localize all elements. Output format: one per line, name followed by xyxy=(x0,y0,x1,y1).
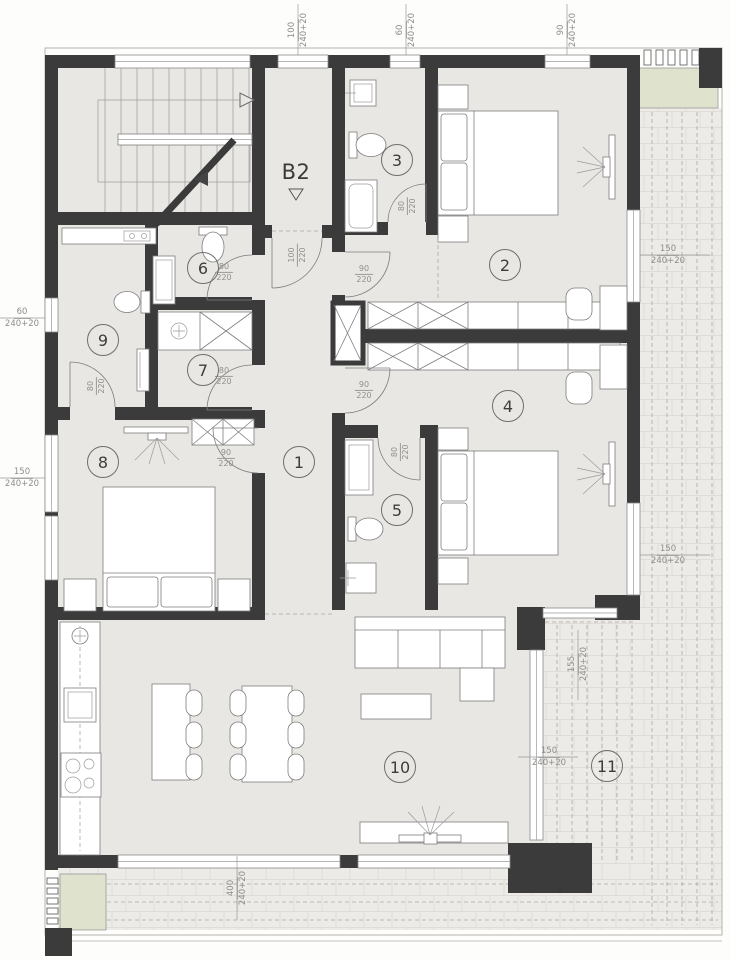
room-badge-9: 9 xyxy=(87,324,119,356)
laundry-fixtures xyxy=(158,312,252,350)
door-size-label: 80220 xyxy=(86,377,106,395)
room-badge-6: 6 xyxy=(187,252,219,284)
dimension-label: 90240+20 xyxy=(556,13,578,47)
room-badge-7: 7 xyxy=(187,354,219,386)
door-size-label: 100220 xyxy=(287,243,307,266)
coffee-table xyxy=(361,694,431,719)
plan-drawing xyxy=(0,0,731,960)
door-size-label: 80220 xyxy=(390,443,410,461)
dimension-label: 60240+20 xyxy=(5,307,39,329)
door-size-label: 90220 xyxy=(355,264,373,284)
floor-plan: B2 1234567891011100220802209022080220802… xyxy=(0,0,731,960)
room-badge-5: 5 xyxy=(381,494,413,526)
door-size-label: 90220 xyxy=(217,448,235,468)
room-badge-11: 11 xyxy=(591,750,623,782)
room-badge-1: 1 xyxy=(283,446,315,478)
unit-label: B2 xyxy=(282,160,311,184)
room-badge-3: 3 xyxy=(381,144,413,176)
dimension-label: 150240+20 xyxy=(532,746,566,768)
shaft xyxy=(333,303,363,363)
dimension-label: 400240+20 xyxy=(226,871,248,905)
room-badge-2: 2 xyxy=(489,249,521,281)
dimension-label: 150240+20 xyxy=(5,467,39,489)
door-size-label: 90220 xyxy=(355,380,373,400)
door-size-label: 80220 xyxy=(397,197,417,215)
dimension-label: 150240+20 xyxy=(651,244,685,266)
room-badge-4: 4 xyxy=(492,390,524,422)
room-badge-8: 8 xyxy=(87,446,119,478)
dimension-label: 100240+20 xyxy=(287,13,309,47)
dimension-label: 60240+20 xyxy=(395,13,417,47)
dimension-label: 155240+20 xyxy=(567,647,589,681)
room-badge-10: 10 xyxy=(384,751,416,783)
dimension-label: 150240+20 xyxy=(651,544,685,566)
kitchen xyxy=(60,622,101,855)
